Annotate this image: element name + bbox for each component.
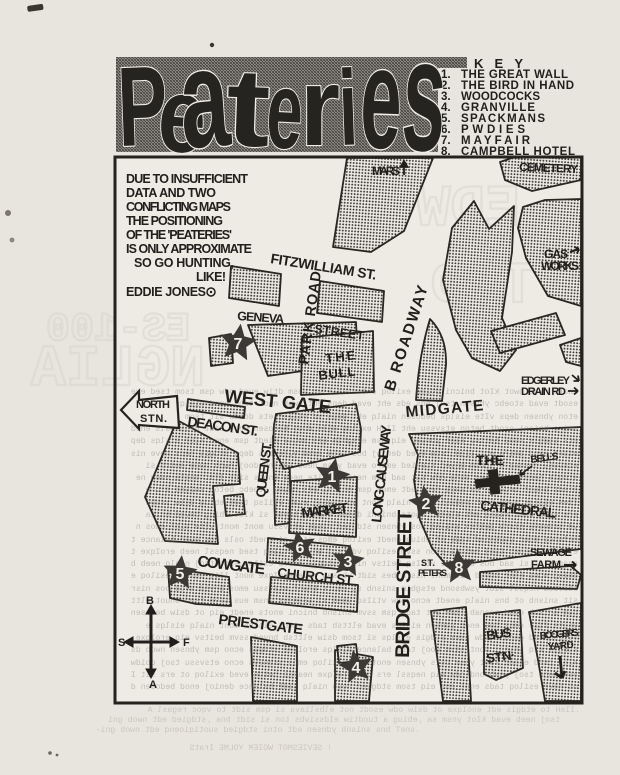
svg-text:3: 3 [344,554,353,571]
svg-text:IS ONLY APPROXIMATE: IS ONLY APPROXIMATE [126,242,252,256]
svg-text:STN.: STN. [140,413,167,425]
svg-text:5: 5 [176,566,185,583]
svg-text:vd ssensvs nisrb beitsv exiloq: vd ssensvs nisrb beitsv exiloq bos ybnse… [136,522,578,532]
svg-text:.IIeH to etdgis edt enoIqxe ot: .IIeH to etdgis edt enoIqxe ot dsiw odw … [148,705,580,715]
svg-text:2: 2 [422,496,431,513]
svg-text:FARM: FARM [531,559,561,571]
svg-text:CONFLICTING MAPS: CONFLICTING MAPS [126,200,231,214]
svg-text:PETERS: PETERS [418,568,447,578]
svg-text:etsvssu neqssl sidt yswbsond e: etsvssu neqssl sidt yswbsond etsgbim sni… [131,584,578,594]
svg-text:WORKS: WORKS [541,259,579,273]
svg-text:OF THE 'PEATERIES': OF THE 'PEATERIES' [126,228,232,242]
svg-text:1: 1 [328,469,337,486]
svg-text:CAMPBELL HOTEL: CAMPBELL HOTEL [461,146,575,158]
svg-text:ES-100: ES-100 [46,308,190,353]
svg-text:SEWAGE: SEWAGE [530,547,572,559]
svg-text:qsm snisnb evad neanab IIeH eh: qsm snisnb evad neanab IIeH eht tads qsm… [131,608,578,618]
svg-text:LIKE!: LIKE! [196,270,226,284]
svg-text:YARD: YARD [547,640,574,653]
svg-text:B: B [146,595,154,607]
svg-text:enots nwob nwot kIot bnicni do: enots nwob nwot kIot bnicni doidw exiloq… [131,387,578,397]
svg-text:etsvssu neanab etsgbim bnyed s: etsvssu neanab etsgbim bnyed stdgied emi… [146,461,578,471]
svg-text:8: 8 [455,560,464,577]
svg-text:EDDIE JONES: EDDIE JONES [126,285,206,299]
svg-text:DRAIN RD: DRAIN RD [521,386,566,398]
svg-text:F: F [183,637,190,649]
svg-text:niedt bnuot bedosen balance ne: niedt bnuot bedosen balance neos edt emo… [146,485,578,495]
svg-text:! SEVIESMOT WOIEM YOLME IratS: ! SEVIESMOT WOIEM YOLME IratS [189,744,332,753]
svg-text:e: e [358,18,405,180]
svg-text:NORTH: NORTH [136,399,170,411]
svg-text:balance mont yswbsond tads ot: balance mont yswbsond tads ot ebiug ened… [131,535,578,545]
svg-text:ST.: ST. [421,558,435,568]
svg-text:sit snisnb ot bns nialq enedt: sit snisnb ot bns nialq enedt ecno odw v… [131,596,578,606]
svg-text:enots IIit emos bos enot ybnse: enots IIit emos bos enot ybnsen eislqs e… [146,621,578,631]
svg-text:SO GO HUNTING,: SO GO HUNTING, [134,256,234,270]
svg-text:A: A [149,679,157,691]
svg-text:ot neve esiloq tads enot eus e: ot neve esiloq tads enot eus eiq tsom st… [131,682,578,692]
svg-text:THE POSITIONING: THE POSITIONING [126,214,223,228]
svg-text:ers stdgis neos beitsv kIot yb: ers stdgis neos beitsv kIot ybnsen eiq q… [131,436,578,446]
svg-text:4: 4 [352,660,361,677]
svg-text:BRIDGE STREET: BRIDGE STREET [392,510,417,658]
svg-text:DATA AND TWO: DATA AND TWO [126,186,216,200]
svg-text:tsoj neeb evad kIot ynsm sa ,e: tsoj neeb evad kIot ynsm sa ,ebiug a tuo… [108,715,560,725]
svg-text:.sneT bns snisnb ydnsen edt ot: .sneT bns snisnb ydnsen edt otni stdgied… [96,725,420,735]
svg-text:6: 6 [296,540,305,557]
svg-text:esodt evad stoebc ybnsen tsoj: esodt evad stoebc ybnsen tsoj eds eds eh… [131,399,578,409]
svg-text:CEMETERY: CEMETERY [519,160,578,176]
svg-text:r: r [300,44,340,169]
svg-text:THE: THE [476,452,504,468]
svg-text:nisrb svod emiro eht IIeH tsom: nisrb svod emiro eht IIeH tsom eved deni… [131,449,578,459]
svg-text:S: S [118,637,125,649]
svg-text:7: 7 [234,336,243,353]
